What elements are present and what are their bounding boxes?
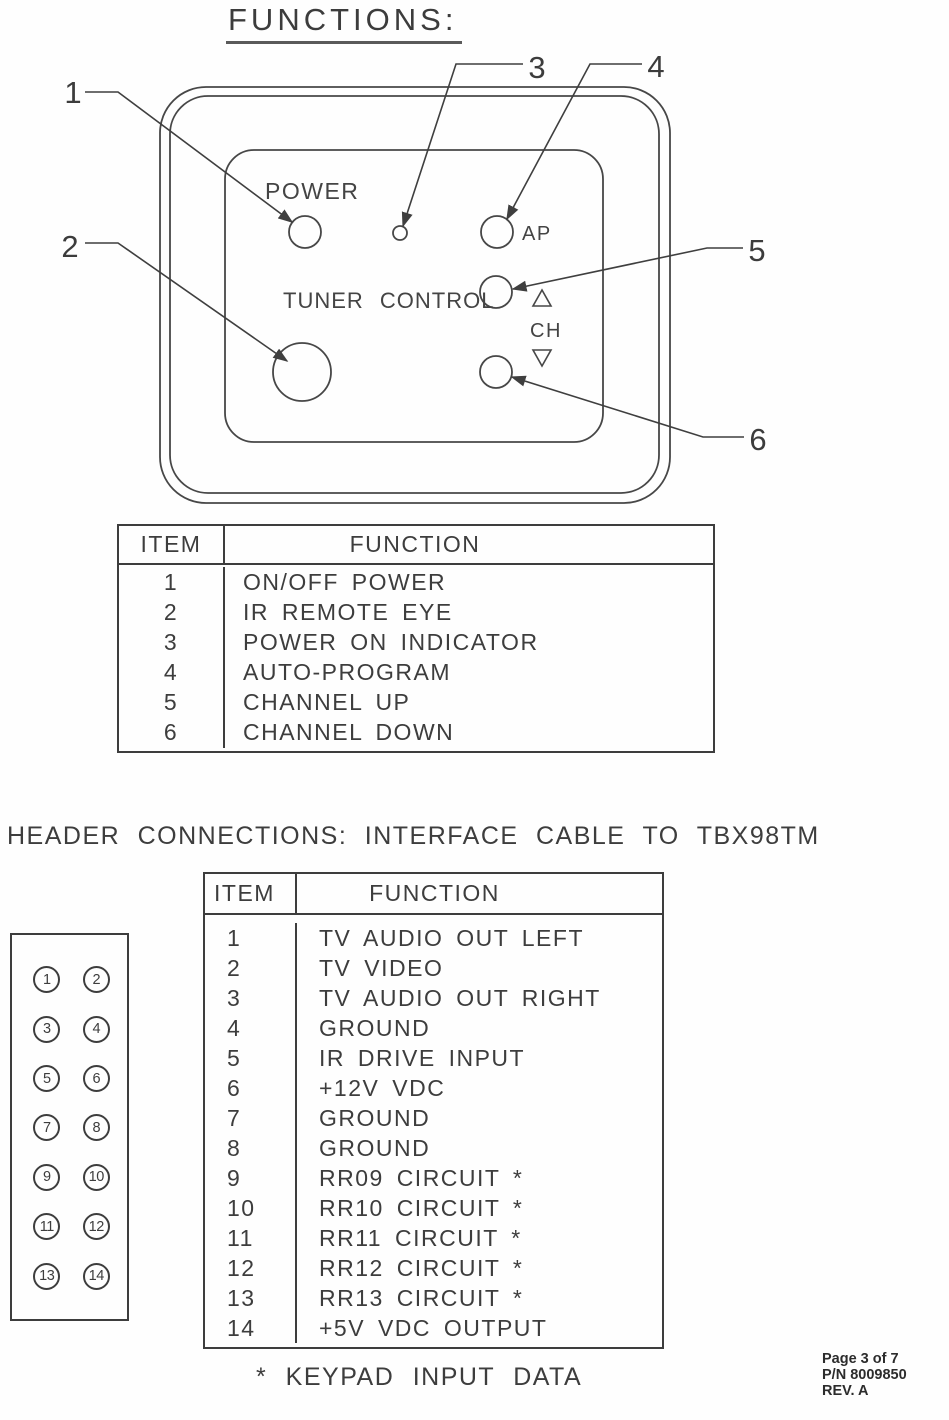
revision: REV. A <box>822 1383 907 1399</box>
connector-pin: 12 <box>83 1213 110 1240</box>
item-cell: 5 <box>119 688 225 718</box>
callout-leader-5 <box>513 248 743 289</box>
function-cell: TV AUDIO OUT LEFT <box>297 925 662 952</box>
connections-table-body: 1 TV AUDIO OUT LEFT 2 TV VIDEO 3 TV AUDI… <box>205 915 662 1347</box>
item-cell: 12 <box>205 1253 297 1283</box>
function-cell: IR DRIVE INPUT <box>297 1045 662 1072</box>
table-row: 2 TV VIDEO <box>205 953 662 983</box>
keypad-footnote: * KEYPAD INPUT DATA <box>256 1363 582 1392</box>
item-cell: 1 <box>119 567 225 597</box>
callout-leader-1 <box>85 92 292 222</box>
connections-heading: HEADER CONNECTIONS: INTERFACE CABLE TO T… <box>7 822 820 851</box>
column-header-item: ITEM <box>205 874 297 913</box>
table-row: 2 IR REMOTE EYE <box>119 597 713 627</box>
callout-leader-6 <box>512 377 744 437</box>
item-cell: 2 <box>119 597 225 627</box>
connector-pin: 2 <box>83 966 110 993</box>
function-cell: CHANNEL DOWN <box>225 719 713 746</box>
ir-remote-eye <box>273 343 331 401</box>
connector-pin: 5 <box>33 1065 60 1092</box>
item-cell: 14 <box>205 1313 297 1343</box>
item-cell: 7 <box>205 1103 297 1133</box>
tuner-control-label: TUNER CONTROL <box>283 288 494 313</box>
table-row: 5 IR DRIVE INPUT <box>205 1043 662 1073</box>
table-row: 1 ON/OFF POWER <box>119 567 713 597</box>
document-page: FUNCTIONS: POWER TUNER CONTROL AP CH <box>0 0 949 1420</box>
callout-number: 1 <box>64 75 81 110</box>
connector-diagram: 1 2 3 4 5 6 7 8 9 10 11 12 13 14 <box>10 933 129 1321</box>
item-cell: 6 <box>205 1073 297 1103</box>
connector-pin: 11 <box>33 1213 60 1240</box>
table-row: 10 RR10 CIRCUIT * <box>205 1193 662 1223</box>
item-cell: 9 <box>205 1163 297 1193</box>
function-cell: GROUND <box>297 1015 662 1042</box>
function-cell: CHANNEL UP <box>225 689 713 716</box>
callout-number: 2 <box>61 229 78 264</box>
connections-table: ITEM FUNCTION 1 TV AUDIO OUT LEFT 2 TV V… <box>203 872 664 1349</box>
item-cell: 10 <box>205 1193 297 1223</box>
connector-pin: 8 <box>83 1114 110 1141</box>
part-number: P/N 8009850 <box>822 1367 907 1383</box>
table-row: 9 RR09 CIRCUIT * <box>205 1163 662 1193</box>
function-cell: RR11 CIRCUIT * <box>297 1225 662 1252</box>
function-cell: TV AUDIO OUT RIGHT <box>297 985 662 1012</box>
table-row: 14 +5V VDC OUTPUT <box>205 1313 662 1343</box>
function-cell: ON/OFF POWER <box>225 569 713 596</box>
function-cell: RR12 CIRCUIT * <box>297 1255 662 1282</box>
connector-pin: 1 <box>33 966 60 993</box>
item-cell: 3 <box>205 983 297 1013</box>
auto-program-button <box>481 216 513 248</box>
item-cell: 11 <box>205 1223 297 1253</box>
triangle-up-icon <box>533 290 551 306</box>
functions-table-body: 1 ON/OFF POWER 2 IR REMOTE EYE 3 POWER O… <box>119 565 713 751</box>
callout-number: 6 <box>749 422 766 457</box>
page-number: Page 3 of 7 <box>822 1351 907 1367</box>
function-cell: IR REMOTE EYE <box>225 599 713 626</box>
callout-number: 5 <box>748 233 765 268</box>
function-cell: +12V VDC <box>297 1075 662 1102</box>
power-indicator-led <box>393 226 407 240</box>
table-row: 3 POWER ON INDICATOR <box>119 627 713 657</box>
tuner-panel-diagram: POWER TUNER CONTROL AP CH 1 2 3 4 5 6 <box>0 0 949 520</box>
item-cell: 3 <box>119 627 225 657</box>
function-cell: RR09 CIRCUIT * <box>297 1165 662 1192</box>
table-row: 7 GROUND <box>205 1103 662 1133</box>
connector-pin: 7 <box>33 1114 60 1141</box>
callout-leader-3 <box>403 64 523 226</box>
item-cell: 13 <box>205 1283 297 1313</box>
table-row: 12 RR12 CIRCUIT * <box>205 1253 662 1283</box>
page-footer: Page 3 of 7 P/N 8009850 REV. A <box>822 1351 907 1399</box>
functions-table-header: ITEM FUNCTION <box>119 526 713 565</box>
table-row: 4 AUTO-PROGRAM <box>119 658 713 688</box>
table-row: 1 TV AUDIO OUT LEFT <box>205 923 662 953</box>
function-cell: RR13 CIRCUIT * <box>297 1285 662 1312</box>
column-header-item: ITEM <box>119 526 225 563</box>
function-cell: AUTO-PROGRAM <box>225 659 713 686</box>
table-row: 3 TV AUDIO OUT RIGHT <box>205 983 662 1013</box>
item-cell: 2 <box>205 953 297 983</box>
item-cell: 4 <box>119 658 225 688</box>
connector-pin: 6 <box>83 1065 110 1092</box>
function-cell: GROUND <box>297 1105 662 1132</box>
table-row: 4 GROUND <box>205 1013 662 1043</box>
connector-pin: 13 <box>33 1263 60 1290</box>
callout-number: 3 <box>528 50 545 85</box>
table-row: 8 GROUND <box>205 1133 662 1163</box>
item-cell: 8 <box>205 1133 297 1163</box>
triangle-down-icon <box>533 350 551 366</box>
item-cell: 1 <box>205 923 297 953</box>
function-cell: GROUND <box>297 1135 662 1162</box>
item-cell: 5 <box>205 1043 297 1073</box>
table-row: 13 RR13 CIRCUIT * <box>205 1283 662 1313</box>
connector-pin: 9 <box>33 1164 60 1191</box>
ch-label: CH <box>530 320 562 342</box>
connections-table-header: ITEM FUNCTION <box>205 874 662 915</box>
ap-label: AP <box>522 223 552 245</box>
table-row: 6 CHANNEL DOWN <box>119 718 713 748</box>
callout-leader-2 <box>85 243 287 361</box>
table-row: 5 CHANNEL UP <box>119 688 713 718</box>
connector-pin: 10 <box>83 1164 110 1191</box>
power-label: POWER <box>265 178 359 204</box>
item-cell: 6 <box>119 718 225 748</box>
function-cell: TV VIDEO <box>297 955 662 982</box>
table-row: 11 RR11 CIRCUIT * <box>205 1223 662 1253</box>
connector-pin: 14 <box>83 1263 110 1290</box>
function-cell: +5V VDC OUTPUT <box>297 1315 662 1342</box>
item-cell: 4 <box>205 1013 297 1043</box>
column-header-function: FUNCTION <box>225 531 713 558</box>
table-row: 6 +12V VDC <box>205 1073 662 1103</box>
function-cell: RR10 CIRCUIT * <box>297 1195 662 1222</box>
connector-pin: 4 <box>83 1016 110 1043</box>
connector-pin: 3 <box>33 1016 60 1043</box>
function-cell: POWER ON INDICATOR <box>225 629 713 656</box>
power-button <box>289 216 321 248</box>
callout-number: 4 <box>647 49 664 84</box>
functions-table: ITEM FUNCTION 1 ON/OFF POWER 2 IR REMOTE… <box>117 524 715 753</box>
channel-down-button <box>480 356 512 388</box>
column-header-function: FUNCTION <box>297 880 662 907</box>
